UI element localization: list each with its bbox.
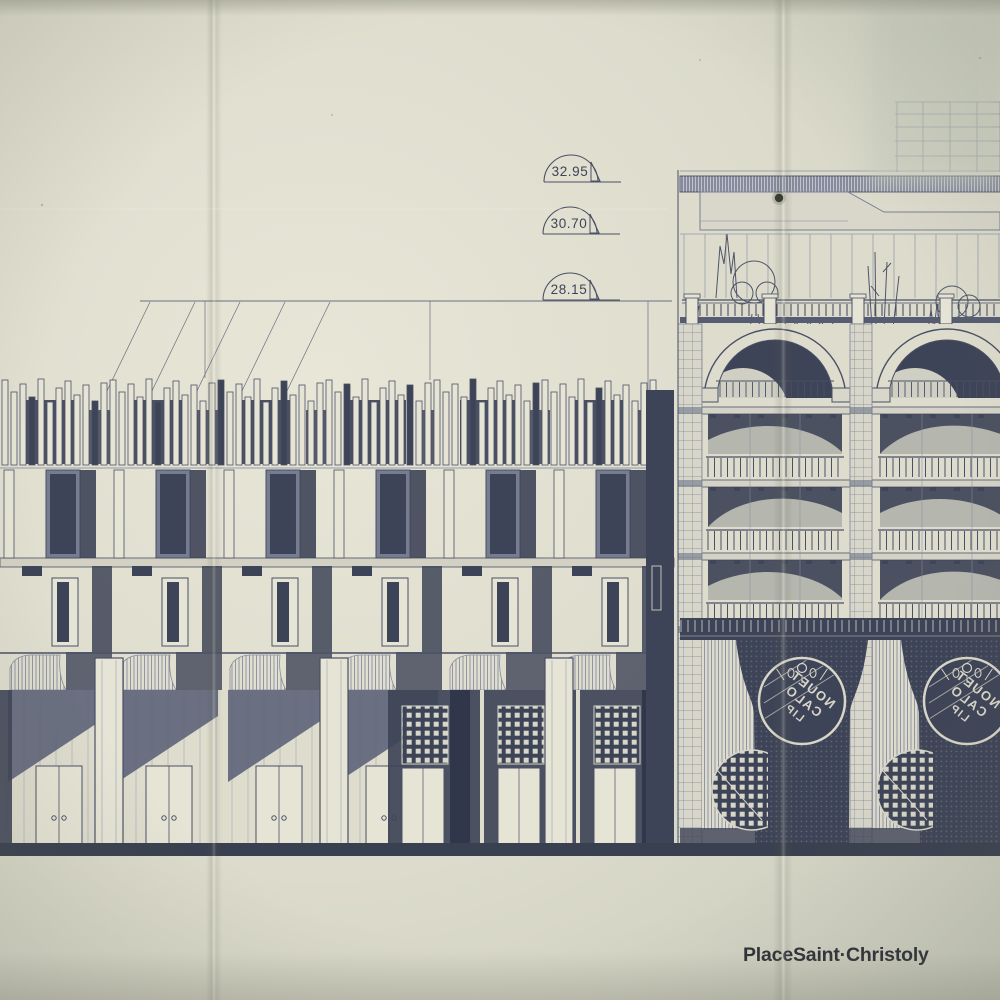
photo-vignette [0, 0, 1000, 1000]
elevation-drawing-photo: 32.9530.7028.15 [0, 0, 1000, 1000]
